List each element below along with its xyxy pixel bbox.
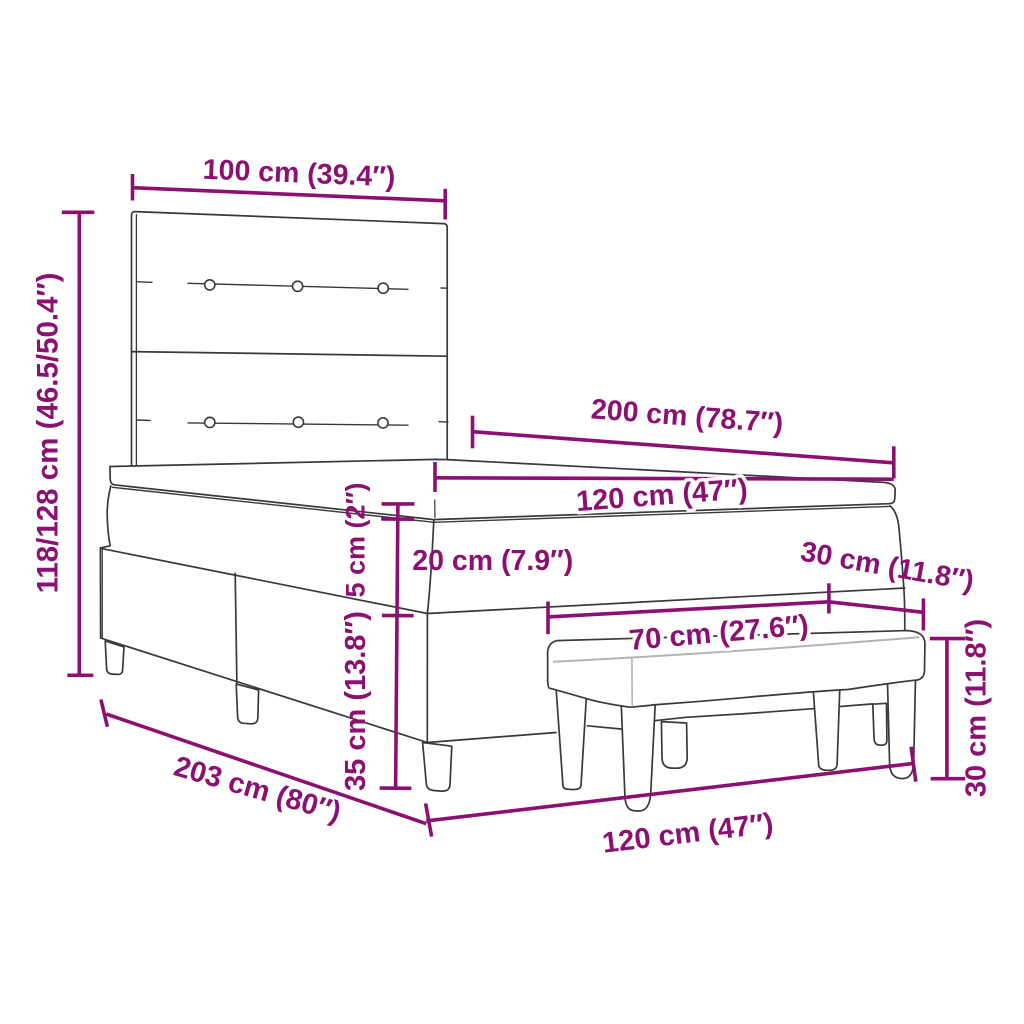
svg-text:5 cm (2″): 5 cm (2″) — [341, 483, 371, 598]
svg-text:118/128 cm (46.5/50.4″): 118/128 cm (46.5/50.4″) — [31, 273, 64, 594]
svg-text:30 cm (11.8″): 30 cm (11.8″) — [960, 619, 992, 797]
svg-text:20 cm (7.9″): 20 cm (7.9″) — [412, 545, 573, 577]
svg-text:35 cm (13.8″): 35 cm (13.8″) — [340, 611, 372, 791]
